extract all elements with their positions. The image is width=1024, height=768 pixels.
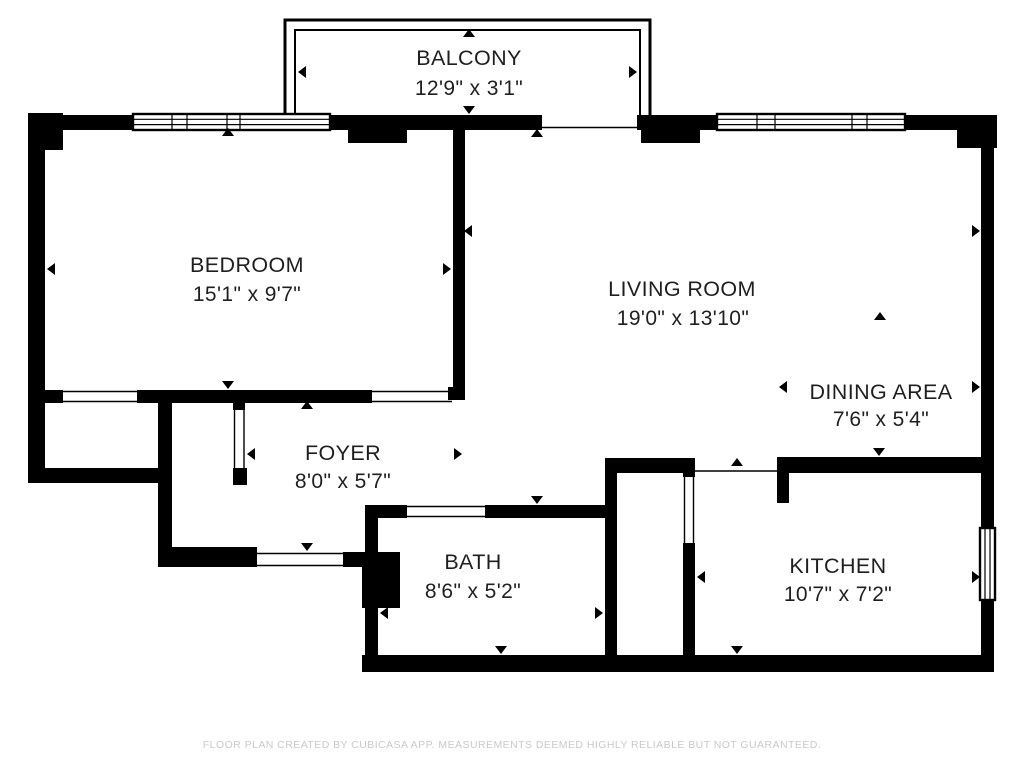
bedroom-window [133, 114, 330, 130]
wall-segment [233, 400, 245, 410]
arrow-left-icon [779, 381, 787, 393]
living-room-label: LIVING ROOM [608, 277, 756, 301]
arrow-right-icon [972, 571, 980, 583]
wall-segment [605, 458, 617, 655]
bath-dimensions: 8'6" x 5'2" [425, 580, 521, 603]
floor-plan-canvas: BALCONY 12'9" x 3'1" BEDROOM 15'1" x 9'7… [0, 0, 1024, 768]
balcony-rail-inner [295, 30, 640, 115]
wall-segment [637, 115, 717, 130]
dining-area-label: DINING AREA [810, 380, 953, 404]
bath-label: BATH [444, 550, 501, 574]
floor-plan-page: BALCONY 12'9" x 3'1" BEDROOM 15'1" x 9'7… [0, 0, 1024, 768]
arrow-left-icon [298, 66, 306, 78]
arrow-left-icon [464, 225, 472, 237]
arrow-down-icon [463, 106, 475, 114]
wall-segment [343, 552, 362, 567]
entry-door-opening [257, 554, 343, 566]
wall-segment [137, 390, 372, 403]
kitchen-window [980, 528, 995, 600]
living-room-window [717, 114, 905, 130]
arrow-left-icon [380, 607, 388, 619]
wall-segment [158, 547, 257, 567]
arrow-down-icon [495, 646, 507, 654]
wall-segment [365, 605, 378, 657]
arrow-left-icon [47, 263, 55, 275]
foyer-closet-door-opening [235, 410, 245, 468]
balcony-label: BALCONY [416, 46, 522, 70]
arrow-right-icon [595, 607, 603, 619]
arrow-down-icon [731, 646, 743, 654]
living-room-dimensions: 19'0" x 13'10" [617, 307, 749, 330]
bedroom-door-opening [372, 392, 452, 402]
arrow-right-icon [972, 381, 980, 393]
footer-disclaimer: FLOOR PLAN CREATED BY CUBICASA APP. MEAS… [203, 739, 821, 751]
kitchen-dimensions: 10'7" x 7'2" [784, 583, 892, 606]
wall-segment [453, 126, 465, 400]
wall-segment [28, 468, 163, 483]
arrow-down-icon [531, 496, 543, 504]
wall-segment [45, 390, 63, 403]
wall-segment [158, 390, 172, 567]
balcony-dimensions: 12'9" x 3'1" [415, 77, 523, 100]
arrow-down-icon [873, 448, 885, 456]
arrow-up-icon [531, 129, 543, 137]
arrow-up-icon [731, 458, 743, 466]
arrow-up-icon [874, 312, 886, 320]
arrow-left-icon [247, 448, 255, 460]
wall-segment [683, 543, 695, 655]
wall-segment [605, 458, 695, 473]
wall-segment [330, 115, 542, 130]
wall-pillar [362, 552, 400, 608]
arrow-down-icon [301, 543, 313, 551]
dining-area-dimensions: 7'6" x 5'4" [833, 408, 929, 431]
wall-segment [348, 130, 407, 143]
wall-segment [448, 387, 465, 400]
wall-segment [28, 113, 45, 483]
arrow-left-icon [697, 571, 705, 583]
arrow-right-icon [443, 263, 451, 275]
wall-segment [362, 655, 994, 672]
bedroom-closet-door-opening [63, 392, 137, 402]
foyer-label: FOYER [305, 441, 381, 465]
bedroom-label: BEDROOM [190, 253, 304, 277]
arrow-right-icon [454, 448, 462, 460]
wall-segment [366, 505, 407, 518]
wall-segment [981, 148, 994, 528]
bedroom-dimensions: 15'1" x 9'7" [193, 283, 301, 306]
kitchen-label: KITCHEN [789, 554, 886, 578]
wall-segment [777, 457, 789, 503]
foyer-dimensions: 8'0" x 5'7" [295, 470, 391, 493]
wall-segment [28, 115, 133, 130]
closet-door-opening [685, 473, 694, 543]
balcony-dimension-arrows [298, 29, 637, 114]
arrow-down-icon [222, 381, 234, 389]
wall-segment [777, 457, 981, 473]
wall-segment [641, 130, 700, 143]
arrow-right-icon [629, 66, 637, 78]
windows [133, 114, 995, 600]
bath-door-opening [407, 507, 485, 517]
wall-segment [957, 115, 997, 148]
arrow-right-icon [972, 225, 980, 237]
wall-segment [233, 468, 247, 485]
